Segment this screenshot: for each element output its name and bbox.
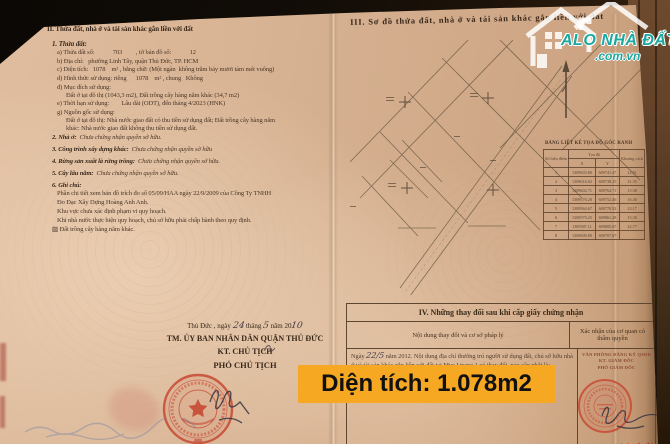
stamp-bleed-mark bbox=[0, 396, 5, 428]
item1-title: 1. Thửa đất: bbox=[52, 40, 87, 48]
table-row: 11309603.80609741.4712.51 bbox=[544, 168, 645, 177]
purpose-label-line: đ) Mục đích sử dụng: bbox=[57, 84, 111, 92]
origin-label-line: g) Nguồn gốc sử dụng: bbox=[57, 109, 115, 117]
change-prefix: Ngày bbox=[351, 353, 366, 360]
section4-title: IV. Những thay đổi sau khi cấp giấy chứn… bbox=[347, 304, 655, 322]
cell: 1309587.11 bbox=[569, 222, 596, 231]
cell: 7 bbox=[544, 222, 569, 231]
cell: 22.77 bbox=[620, 222, 645, 231]
watermark-brand: ALO NHÀ ĐẤT bbox=[561, 32, 670, 50]
coord-table-title: BẢNG LIỆT KÊ TỌA ĐỘ GÓC RANH bbox=[545, 141, 632, 146]
cell: 609770.52 bbox=[595, 204, 619, 213]
cell: 1309564.67 bbox=[569, 204, 596, 213]
parcel-number-line: a) Thửa đất số: 703 , tờ bản đồ số: 12 bbox=[57, 49, 196, 57]
cell: 5 bbox=[544, 204, 569, 213]
address-line: b) Địa chỉ: phường Linh Tây, quận Thủ Đứ… bbox=[57, 58, 198, 66]
north-arrow bbox=[562, 60, 570, 118]
cell: 1309600.80 bbox=[569, 231, 596, 240]
watermark-domain: .com.vn bbox=[595, 49, 640, 63]
note-line-3: Khu vực chưa xác định phạm vi quy hoạch. bbox=[57, 208, 166, 216]
date-mid1: tháng bbox=[244, 322, 263, 330]
cell: 609707.67 bbox=[595, 231, 619, 240]
item-construction: 3. Công trình xây dựng khác: Chưa chứng … bbox=[52, 146, 212, 154]
item-perennial: 5. Cây lâu năm: Chưa chứng nhận quyền sở… bbox=[52, 170, 179, 178]
director-signature bbox=[596, 394, 664, 432]
item-house: 2. Nhà ở: Chưa chứng nhận quyền sở hữu. bbox=[52, 134, 161, 142]
cell: 609752.46 bbox=[595, 195, 619, 204]
cell: 1 bbox=[544, 168, 569, 177]
coord-col-y: Y bbox=[595, 159, 619, 168]
coord-col-x: X bbox=[569, 159, 596, 168]
cell: 6 bbox=[544, 213, 569, 222]
table-row: 71309587.11609805.6722.77 bbox=[544, 222, 645, 231]
cell: 3 bbox=[544, 186, 569, 195]
stamp-bleed-mark bbox=[0, 343, 6, 381]
cell: 23.17 bbox=[620, 204, 645, 213]
cell: 1309603.80 bbox=[569, 168, 596, 177]
cell: 609764.71 bbox=[595, 186, 619, 195]
origin-detail-line-2: khác: Nhà nước giao đất không thu tiền s… bbox=[66, 125, 197, 133]
section4-confirmation-cell: VĂN PHÒNG ĐĂNG KÝ QSDĐ KT. GIÁM ĐỐC PHÓ … bbox=[578, 349, 655, 444]
note-line-2: Đo Đạc Xây Dựng Hoàng Anh Anh. bbox=[57, 199, 148, 207]
item-forest-value: Chưa chứng nhận quyền sở hữu. bbox=[135, 158, 220, 165]
origin-detail-line-1: Đất ở tại đô thị: Nhà nước giao đất có t… bbox=[66, 117, 275, 125]
coord-col-point: Số hiệu điểm bbox=[544, 150, 569, 168]
table-row: 31309602.71609764.7115.38 bbox=[544, 186, 645, 195]
cell: 609805.67 bbox=[595, 222, 619, 231]
table-row: 51309564.67609770.5223.17 bbox=[544, 204, 645, 213]
cell: 16.46 bbox=[620, 195, 645, 204]
cell: 1309602.71 bbox=[569, 186, 596, 195]
date-line: Thủ Đức , ngày 24 tháng 5 năm 2010 bbox=[145, 321, 345, 331]
alo-nha-dat-watermark: ALO NHÀ ĐẤT .com.vn bbox=[523, 2, 669, 68]
kt-chairman-line: KT. CHỦ TỊCH bbox=[145, 347, 345, 356]
date-mid2: năm 20 bbox=[269, 322, 292, 330]
area-banner-text: Diện tích: 1.078m2 bbox=[321, 370, 532, 398]
term-line: e) Thời hạn sử dụng: Lâu dài (ODT), đến … bbox=[57, 100, 225, 108]
area-banner: Diện tích: 1.078m2 bbox=[298, 365, 555, 403]
note-title: 6. Ghi chú: bbox=[52, 182, 81, 190]
item-forest: 4. Rừng sản xuất là rừng trồng: Chưa chứ… bbox=[52, 158, 220, 166]
office-line-3: PHÓ GIÁM ĐỐC bbox=[578, 365, 655, 371]
cell: 609741.47 bbox=[595, 168, 619, 177]
item-construction-label: 3. Công trình xây dựng khác: bbox=[52, 146, 129, 153]
note-line-5: ▨ Đất trồng cây hàng năm khác. bbox=[52, 226, 135, 234]
section4-col2-header: Xác nhận của cơ quan có thẩm quyền bbox=[570, 322, 655, 348]
area-line: c) Diện tích: 1078 m² , bằng chữ: (Một n… bbox=[57, 66, 274, 74]
faint-handwriting bbox=[15, 418, 265, 444]
cell: 609861.28 bbox=[595, 213, 619, 222]
coordinate-table: Số hiệu điểm Tọa độ Khoảng cách X Y 1130… bbox=[543, 149, 645, 240]
item-house-label: 2. Nhà ở: bbox=[52, 134, 76, 141]
item-forest-label: 4. Rừng sản xuất là rừng trồng: bbox=[52, 158, 135, 165]
committee-line: TM. ỦY BAN NHÂN DÂN QUẬN THỦ ĐỨC bbox=[145, 334, 345, 343]
cell: 2 bbox=[544, 177, 569, 186]
cell: 8 bbox=[544, 231, 569, 240]
coord-col-coords: Tọa độ bbox=[569, 150, 620, 159]
table-row: 41309576.20609752.4616.46 bbox=[544, 195, 645, 204]
cell: 15.30 bbox=[620, 213, 645, 222]
note-line-1: Phần chi tiết xem bản đồ trích đo số 05/… bbox=[57, 190, 271, 198]
handwritten-day: 24 bbox=[232, 321, 245, 331]
table-row: 81309600.80609707.67 bbox=[544, 231, 645, 240]
cell: 12.51 bbox=[620, 168, 645, 177]
item-house-value: Chưa chứng nhận quyền sở hữu. bbox=[76, 134, 161, 141]
item-construction-value: Chưa chứng nhận quyền sở hữu bbox=[129, 146, 213, 153]
table-row: 61309579.25609861.2815.30 bbox=[544, 213, 645, 222]
cell bbox=[620, 231, 645, 240]
section2-title: II. Thửa đất, nhà ở và tài sản khác gắn … bbox=[47, 25, 193, 33]
photo-of-land-certificate: II. Thửa đất, nhà ở và tài sản khác gắn … bbox=[0, 0, 670, 444]
cell: 4 bbox=[544, 195, 569, 204]
table-row: 21309616.02609738.2531.35 bbox=[544, 177, 645, 186]
use-form-line: d) Hình thức sử dụng: riêng 1078 m² , ch… bbox=[57, 75, 203, 83]
cell: 1309616.02 bbox=[569, 177, 596, 186]
item-perennial-value: Chưa chứng nhận quyền sở hữu. bbox=[93, 170, 178, 177]
note-line-4: Khi nhà nước thực hiện quy hoạch, chủ sở… bbox=[57, 217, 251, 225]
item-perennial-label: 5. Cây lâu năm: bbox=[52, 170, 93, 177]
cell: 15.38 bbox=[620, 186, 645, 195]
cell: 609738.25 bbox=[595, 177, 619, 186]
cell: 1309579.25 bbox=[569, 213, 596, 222]
purpose-detail-line: Đất ở tại đô thị (1043,3 m2), Đất trồng … bbox=[66, 92, 239, 100]
handwritten-flourish bbox=[262, 343, 276, 353]
cell: 31.35 bbox=[620, 177, 645, 186]
cell: 1309576.20 bbox=[569, 195, 596, 204]
section4-col1-header: Nội dung thay đổi và cơ sở pháp lý bbox=[347, 322, 570, 348]
coord-col-dist: Khoảng cách bbox=[620, 150, 645, 168]
date-prefix: Thủ Đức , ngày bbox=[187, 322, 233, 330]
handwritten-year: 10 bbox=[291, 321, 304, 331]
